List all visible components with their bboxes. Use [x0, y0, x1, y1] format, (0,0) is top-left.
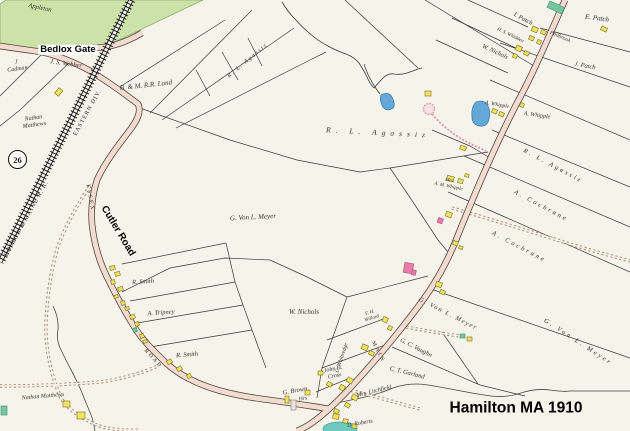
label-w-nichols-center: W. Nichols: [289, 309, 319, 317]
label-j-cadman: J Cadman: [6, 58, 28, 74]
annotation-map-title: Hamilton MA 1910: [450, 399, 583, 416]
historic-map-hamilton-1910: Appleton J Cadman J. S. Webber B. & M. R…: [0, 0, 630, 431]
annotation-marker-26: 26: [8, 150, 27, 169]
cutler-essex-road-casing: [0, 46, 330, 409]
map-canvas: [0, 0, 630, 431]
small-pond: [380, 93, 394, 109]
pond-inlet-stream: [364, 64, 380, 94]
cutler-essex-road: [0, 46, 330, 409]
marker-26-number: 26: [13, 155, 22, 165]
treeline-boundary: [282, 2, 422, 88]
label-r-smith-2: R. Smith: [176, 351, 198, 360]
label-r-smith-1: R. Smith: [132, 278, 154, 287]
annotation-bedlox-gate: Bedlox Gate: [38, 45, 97, 55]
